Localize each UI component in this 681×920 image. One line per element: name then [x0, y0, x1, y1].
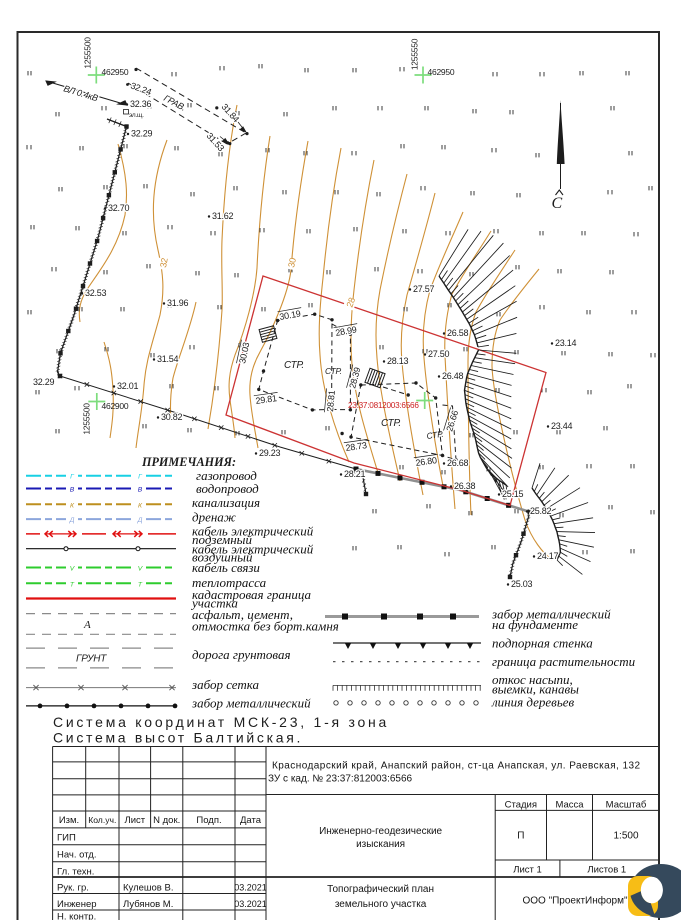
svg-text:ГРУНТ: ГРУНТ [76, 654, 107, 665]
svg-text:Гл. техн.: Гл. техн. [57, 866, 94, 877]
svg-text:32.01: 32.01 [117, 381, 139, 391]
svg-text:Стадия: Стадия [505, 800, 537, 811]
svg-text:эл.щ.: эл.щ. [129, 112, 144, 119]
svg-text:СТР.: СТР. [325, 366, 342, 376]
svg-text:С: С [552, 195, 563, 212]
svg-text:ГИП: ГИП [57, 833, 76, 844]
svg-text:27.50: 27.50 [428, 349, 450, 359]
svg-text:Изм.: Изм. [59, 815, 79, 826]
svg-text:25.03: 25.03 [511, 579, 533, 589]
svg-text:23.14: 23.14 [555, 338, 577, 348]
svg-text:Масштаб: Масштаб [606, 800, 647, 811]
svg-text:462900: 462900 [102, 401, 129, 411]
svg-text:29.23: 29.23 [259, 448, 281, 458]
svg-text:забор сетка: забор сетка [191, 677, 260, 692]
svg-text:Д: Д [137, 517, 143, 524]
svg-text:Кол.уч.: Кол.уч. [88, 815, 116, 825]
svg-text:В: В [70, 487, 75, 494]
svg-text:на фундаменте: на фундаменте [492, 617, 578, 632]
svg-text:26.48: 26.48 [442, 371, 464, 381]
svg-text:Д: Д [69, 517, 75, 524]
svg-text:подпорная стенка: подпорная стенка [492, 636, 593, 651]
svg-text:24.17: 24.17 [537, 551, 559, 561]
svg-text:отмостка без борт.камня: отмостка без борт.камня [192, 619, 339, 634]
svg-text:П: П [517, 831, 524, 842]
svg-text:дренаж: дренаж [192, 510, 236, 525]
svg-text:1255550: 1255550 [410, 38, 420, 70]
svg-text:32.29: 32.29 [131, 129, 153, 139]
svg-text:Лист: Лист [124, 815, 145, 826]
svg-text:Нач. отд.: Нач. отд. [57, 849, 96, 860]
svg-text:32.53: 32.53 [85, 288, 107, 298]
svg-text:23.44: 23.44 [551, 421, 573, 431]
svg-text:канализация: канализация [192, 495, 260, 510]
svg-text:водопровод: водопровод [196, 481, 259, 496]
svg-text:Листов 1: Листов 1 [587, 865, 626, 876]
svg-text:СТР.: СТР. [381, 418, 401, 429]
svg-text:31.62: 31.62 [212, 211, 234, 221]
svg-text:30.82: 30.82 [161, 412, 183, 422]
svg-text:Масса: Масса [555, 800, 584, 811]
svg-text:28.21: 28.21 [344, 469, 366, 479]
svg-text:1:500: 1:500 [613, 831, 638, 842]
svg-text:ПРИМЕЧАНИЯ:: ПРИМЕЧАНИЯ: [141, 455, 236, 469]
svg-text:забор металлический: забор металлический [191, 696, 311, 711]
svg-text:462950: 462950 [428, 67, 455, 77]
svg-text:26.68: 26.68 [447, 458, 469, 468]
svg-text:кабель связи: кабель связи [192, 560, 260, 575]
svg-text:Система высот Балтийская.: Система высот Балтийская. [53, 730, 303, 746]
svg-text:А: А [83, 619, 91, 631]
svg-text:Краснодарский край, Анапский р: Краснодарский край, Анапский район, ст-ц… [272, 761, 641, 772]
svg-text:23:37:0812003:6566: 23:37:0812003:6566 [348, 401, 419, 410]
svg-text:1255500: 1255500 [82, 403, 92, 435]
svg-text:26.58: 26.58 [447, 328, 469, 338]
svg-text:Лубянов М.: Лубянов М. [123, 899, 173, 910]
svg-text:линия деревьев: линия деревьев [491, 695, 575, 710]
svg-text:32.29: 32.29 [33, 377, 55, 387]
svg-text:земельного участка: земельного участка [335, 899, 427, 910]
svg-text:СТР.: СТР. [284, 360, 304, 371]
svg-text:462950: 462950 [102, 67, 129, 77]
svg-text:Кулешов В.: Кулешов В. [123, 883, 173, 894]
svg-text:В: В [138, 487, 143, 494]
svg-text:32.36: 32.36 [130, 99, 152, 109]
svg-text:Топографический план: Топографический план [327, 883, 434, 895]
svg-text:03.2021: 03.2021 [234, 899, 267, 909]
svg-text:32.70: 32.70 [108, 203, 130, 213]
svg-text:27.57: 27.57 [413, 284, 435, 294]
svg-text:ЗУ с кад. № 23:37:812003:6566: ЗУ с кад. № 23:37:812003:6566 [268, 774, 413, 785]
svg-text:Рук. гр.: Рук. гр. [57, 883, 89, 894]
svg-text:32: 32 [158, 257, 170, 268]
svg-text:ООО "ПроектИнформ": ООО "ПроектИнформ" [522, 895, 628, 907]
svg-text:Дата: Дата [240, 815, 262, 826]
svg-text:Н. контр.: Н. контр. [57, 912, 96, 920]
svg-text:N док.: N док. [153, 815, 180, 826]
svg-text:Лист 1: Лист 1 [513, 865, 542, 876]
svg-text:Подп.: Подп. [196, 815, 221, 826]
svg-text:граница растительности: граница растительности [492, 654, 636, 669]
svg-text:25.15: 25.15 [502, 489, 524, 499]
svg-text:31.54: 31.54 [157, 354, 179, 364]
svg-text:28.13: 28.13 [387, 356, 409, 366]
svg-text:дорога грунтовая: дорога грунтовая [192, 647, 291, 662]
svg-text:26.38: 26.38 [454, 481, 476, 491]
svg-text:28.81: 28.81 [325, 390, 337, 412]
svg-text:31.96: 31.96 [167, 298, 189, 308]
svg-text:25.82: 25.82 [530, 506, 552, 516]
svg-text:1255500: 1255500 [83, 37, 93, 69]
svg-text:Инженерно-геодезические: Инженерно-геодезические [319, 826, 442, 837]
svg-text:Инженер: Инженер [57, 899, 97, 910]
svg-text:03.2021: 03.2021 [234, 883, 267, 893]
svg-text:Система координат МСК-23, 1-я: Система координат МСК-23, 1-я зона [53, 714, 389, 730]
svg-text:изыскания: изыскания [356, 839, 405, 850]
